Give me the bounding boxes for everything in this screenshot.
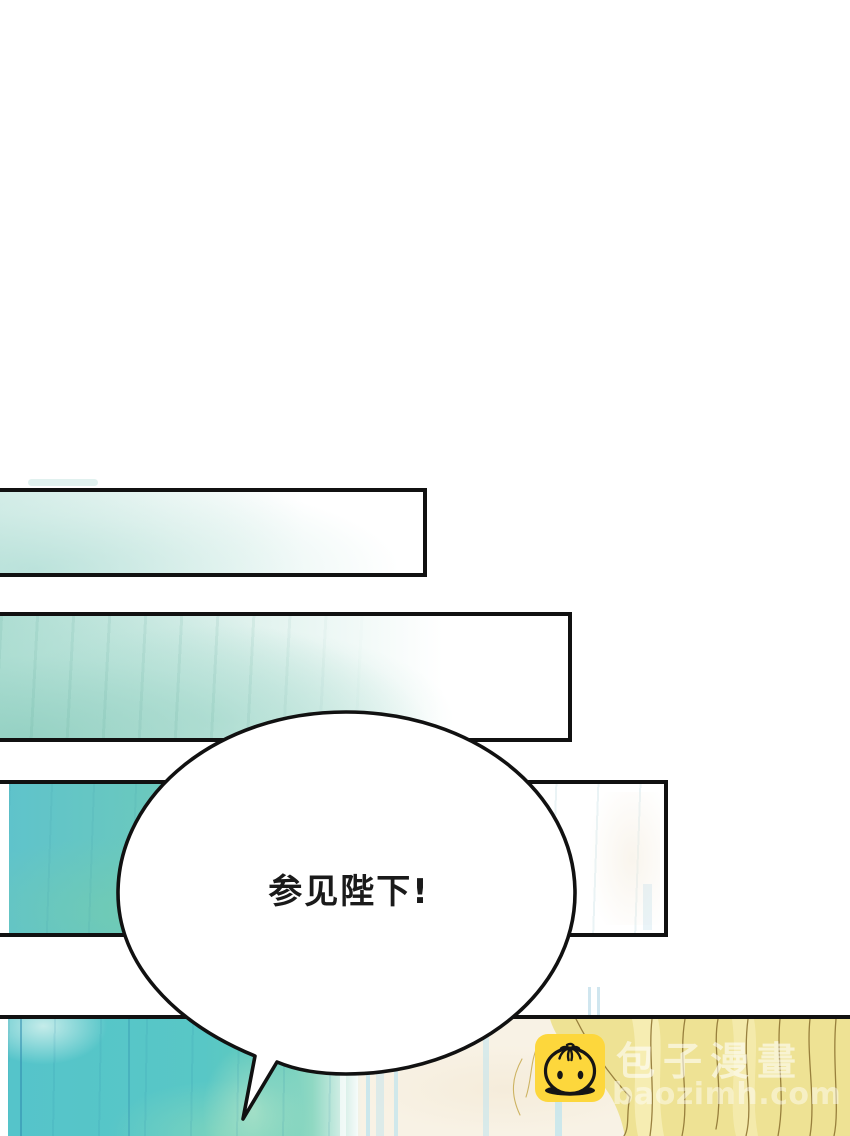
speech-text: 参见陛下! (196, 871, 502, 913)
watercolor-background (8, 1019, 362, 1136)
watercolor-line (128, 1019, 130, 1136)
blue-stripe (376, 1019, 384, 1136)
faint-stripe (588, 987, 591, 1015)
baozi-bun-icon (535, 1034, 605, 1102)
baozi-bun-drawing (535, 1034, 605, 1102)
blue-stripe (394, 1019, 398, 1136)
flashback-panel-3 (0, 780, 668, 937)
blue-stripe (555, 1097, 562, 1136)
watercolor-bleed (28, 479, 98, 486)
watercolor-wash (0, 492, 423, 573)
faint-stripe (643, 884, 652, 930)
watermark-site-url: baozimh.com (612, 1077, 841, 1112)
white-streak (340, 1019, 346, 1136)
comic-page-canvas: 参见陛下! 包子漫畫 baozimh.com (0, 0, 850, 1136)
flashback-panel-2 (0, 612, 572, 742)
watercolor-line (20, 1019, 22, 1136)
faint-stripe (597, 987, 600, 1015)
watercolor-streaks (0, 616, 386, 738)
flashback-panel-1 (0, 488, 427, 577)
blue-stripe (366, 1019, 370, 1136)
